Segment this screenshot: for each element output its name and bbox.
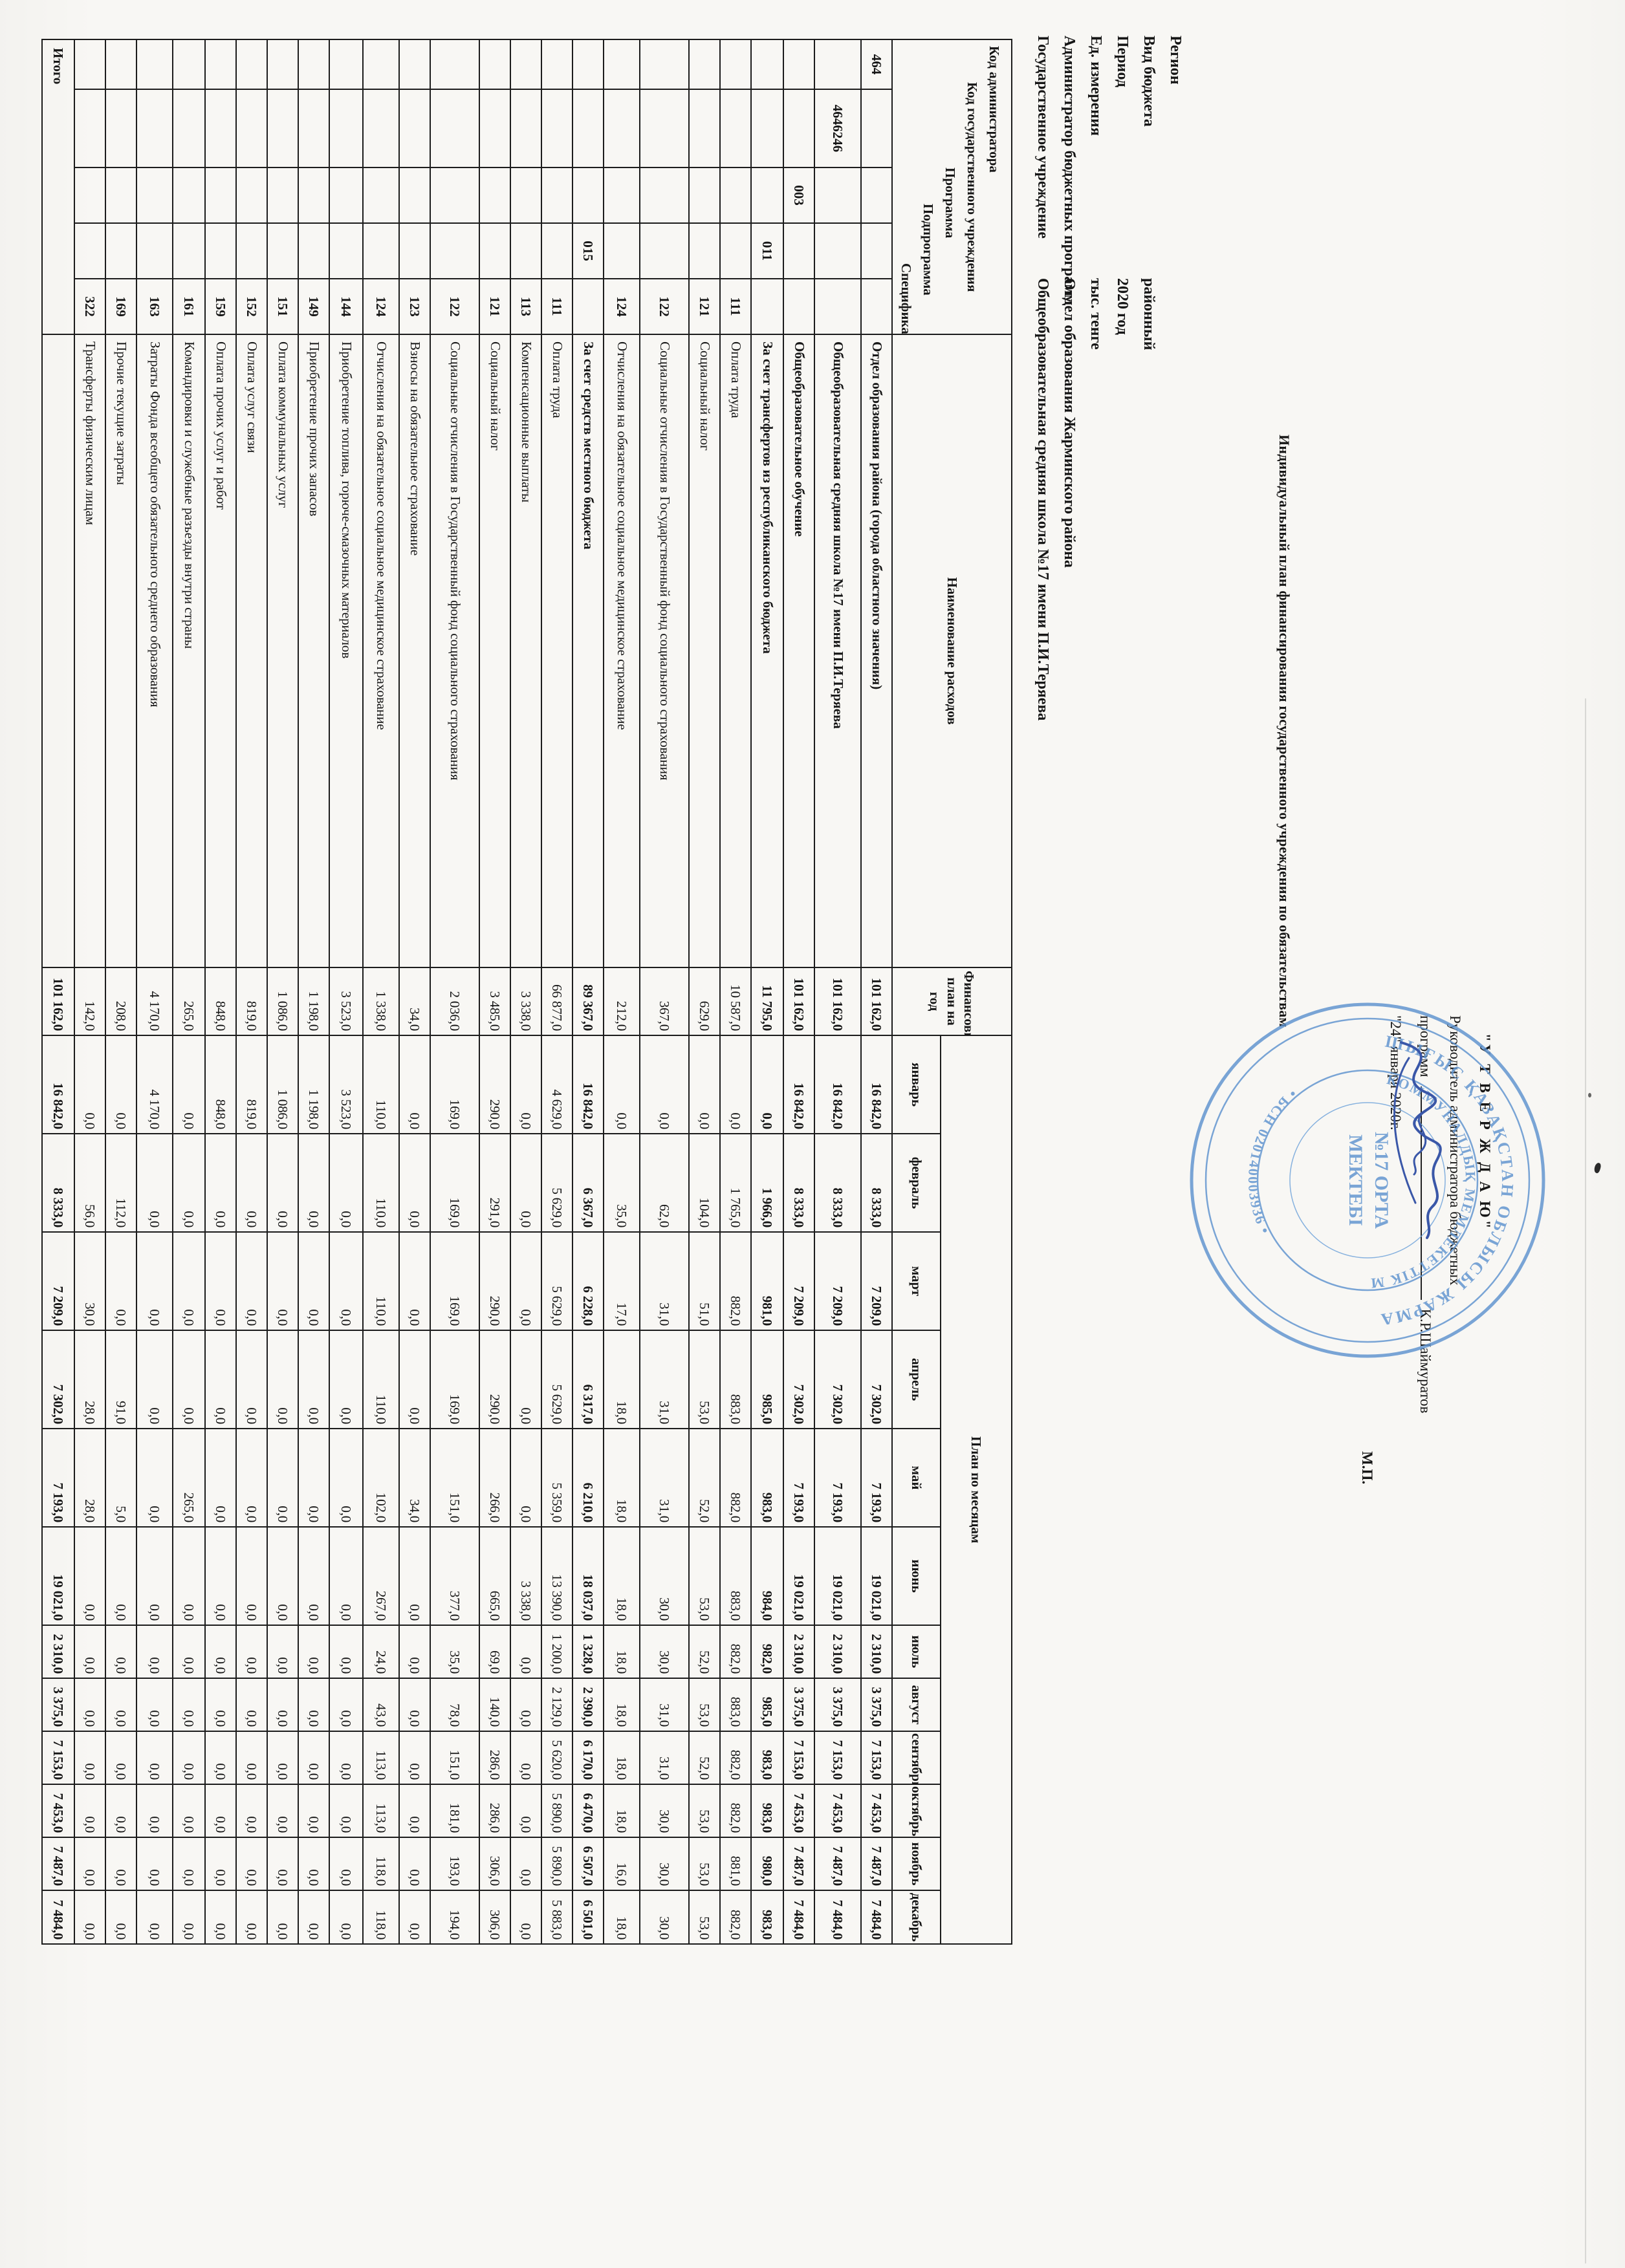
- code-cell: [399, 39, 430, 89]
- amount-cell: 194,0: [430, 1890, 479, 1944]
- code-cell: [640, 89, 689, 167]
- amount-cell: 981,0: [751, 1232, 783, 1330]
- amount-cell: 266,0: [479, 1429, 510, 1527]
- amount-cell: 0,0: [74, 1625, 105, 1678]
- amount-cell: 984,0: [751, 1527, 783, 1625]
- code-cell: [74, 223, 105, 279]
- code-cell: [430, 167, 479, 223]
- code-cell: 123: [399, 279, 430, 334]
- amount-cell: 18,0: [604, 1625, 640, 1678]
- amount-cell: 0,0: [329, 1429, 363, 1527]
- amount-cell: 985,0: [751, 1330, 783, 1429]
- month-header-февраль: февраль: [892, 1134, 941, 1232]
- code-cell: [173, 89, 205, 167]
- amount-cell: 0,0: [267, 1731, 298, 1784]
- code-cell: [814, 223, 861, 279]
- code-cell: [74, 89, 105, 167]
- amount-cell: 0,0: [399, 1232, 430, 1330]
- code-cell: 015: [573, 223, 604, 279]
- code-columns-header: Код администратораКод государственного у…: [892, 39, 1012, 334]
- code-cell: [783, 89, 814, 167]
- code-cell: [783, 279, 814, 334]
- meta-value: тыс. тенге: [1087, 278, 1104, 350]
- code-cell: 4646246: [814, 89, 861, 167]
- amount-cell: 5,0: [105, 1429, 136, 1527]
- amount-cell: 1 966,0: [751, 1134, 783, 1232]
- amount-cell: 5 629,0: [541, 1134, 573, 1232]
- month-header-апрель: апрель: [892, 1330, 941, 1429]
- amount-cell: 3 375,0: [783, 1678, 814, 1731]
- amount-cell: 101 162,0: [42, 967, 74, 1035]
- code-cell: [399, 167, 430, 223]
- amount-cell: 2 129,0: [541, 1678, 573, 1731]
- amount-cell: 6 367,0: [573, 1134, 604, 1232]
- amount-cell: 69,0: [479, 1625, 510, 1678]
- code-cell: [173, 223, 205, 279]
- amount-cell: 13 390,0: [541, 1527, 573, 1625]
- amount-cell: 0,0: [267, 1678, 298, 1731]
- amount-cell: 34,0: [399, 1429, 430, 1527]
- document-title: Индивидуальный план финансирования госуд…: [1276, 435, 1292, 1017]
- amount-cell: 0,0: [399, 1625, 430, 1678]
- amount-cell: 17,0: [604, 1232, 640, 1330]
- amount-cell: 169,0: [430, 1232, 479, 1330]
- amount-cell: 0,0: [604, 1035, 640, 1134]
- amount-cell: 89 367,0: [573, 967, 604, 1035]
- amount-cell: 7 153,0: [42, 1731, 74, 1784]
- code-cell: [363, 39, 399, 89]
- expense-name-cell: Оплата коммунальных услуг: [267, 334, 298, 967]
- amount-cell: 0,0: [74, 1784, 105, 1837]
- expense-name-cell: Социальный налог: [479, 334, 510, 967]
- code-cell: [267, 89, 298, 167]
- code-cell: [74, 39, 105, 89]
- code-header-label: Подпрограмма: [917, 41, 939, 333]
- amount-cell: 3 338,0: [510, 1527, 541, 1625]
- code-cell: [479, 223, 510, 279]
- amount-cell: 629,0: [689, 967, 720, 1035]
- amount-cell: 18,0: [604, 1678, 640, 1731]
- amount-cell: 0,0: [298, 1625, 329, 1678]
- code-cell: [399, 89, 430, 167]
- amount-cell: 0,0: [205, 1429, 236, 1527]
- amount-cell: 11 795,0: [751, 967, 783, 1035]
- amount-cell: 0,0: [399, 1731, 430, 1784]
- amount-cell: 16 842,0: [783, 1035, 814, 1134]
- amount-cell: 0,0: [173, 1232, 205, 1330]
- amount-cell: 3 375,0: [42, 1678, 74, 1731]
- code-cell: [640, 167, 689, 223]
- code-cell: [510, 89, 541, 167]
- code-cell: [173, 167, 205, 223]
- amount-cell: 6 210,0: [573, 1429, 604, 1527]
- amount-cell: 0,0: [510, 1134, 541, 1232]
- amount-cell: 5 620,0: [541, 1731, 573, 1784]
- amount-cell: 53,0: [689, 1890, 720, 1944]
- scanner-streak: [1585, 698, 1586, 2263]
- amount-cell: 0,0: [236, 1784, 267, 1837]
- plan-year-column-header: Финансовый план на год: [892, 967, 1012, 1035]
- amount-cell: 7 484,0: [783, 1890, 814, 1944]
- amount-cell: 0,0: [267, 1429, 298, 1527]
- code-cell: [267, 223, 298, 279]
- amount-cell: 16 842,0: [814, 1035, 861, 1134]
- code-cell: [298, 89, 329, 167]
- amount-cell: 0,0: [105, 1035, 136, 1134]
- expense-name-cell: Оплата труда: [720, 334, 751, 967]
- amount-cell: 7 487,0: [861, 1837, 892, 1890]
- code-cell: [604, 223, 640, 279]
- code-cell: [861, 89, 892, 167]
- expense-name-cell: Затраты Фонда всеобщего обязательного ср…: [136, 334, 173, 967]
- amount-cell: 66 877,0: [541, 967, 573, 1035]
- code-cell: [136, 89, 173, 167]
- amount-cell: 3 375,0: [814, 1678, 861, 1731]
- amount-cell: 53,0: [689, 1837, 720, 1890]
- expense-name-cell: Оплата прочих услуг и работ: [205, 334, 236, 967]
- code-cell: [105, 89, 136, 167]
- amount-cell: 883,0: [720, 1527, 751, 1625]
- code-cell: 111: [541, 279, 573, 334]
- amount-cell: 110,0: [363, 1035, 399, 1134]
- code-cell: [751, 167, 783, 223]
- code-cell: [861, 167, 892, 223]
- amount-cell: 291,0: [479, 1134, 510, 1232]
- amount-cell: 0,0: [399, 1134, 430, 1232]
- amount-cell: 0,0: [298, 1731, 329, 1784]
- code-cell: [541, 39, 573, 89]
- code-cell: [363, 223, 399, 279]
- amount-cell: 983,0: [751, 1784, 783, 1837]
- amount-cell: 5 629,0: [541, 1232, 573, 1330]
- code-cell: [298, 39, 329, 89]
- amount-cell: 7 453,0: [814, 1784, 861, 1837]
- meta-value: Общеобразовательная средняя школа №17 им…: [1034, 278, 1051, 720]
- code-cell: [105, 167, 136, 223]
- code-cell: 149: [298, 279, 329, 334]
- amount-cell: 5 890,0: [541, 1837, 573, 1890]
- amount-cell: 882,0: [720, 1784, 751, 1837]
- month-header-ноябрь: ноябрь: [892, 1837, 941, 1890]
- code-cell: [136, 39, 173, 89]
- amount-cell: 0,0: [136, 1837, 173, 1890]
- amount-cell: 0,0: [236, 1527, 267, 1625]
- amount-cell: 53,0: [689, 1527, 720, 1625]
- amount-cell: 52,0: [689, 1625, 720, 1678]
- code-cell: 121: [479, 279, 510, 334]
- amount-cell: 24,0: [363, 1625, 399, 1678]
- amount-cell: 19 021,0: [814, 1527, 861, 1625]
- meta-row: Регион: [1157, 36, 1184, 876]
- code-cell: [573, 89, 604, 167]
- amount-cell: 1 338,0: [363, 967, 399, 1035]
- amount-cell: 0,0: [74, 1527, 105, 1625]
- amount-cell: 7 153,0: [814, 1731, 861, 1784]
- amount-cell: 290,0: [479, 1330, 510, 1429]
- code-cell: [479, 89, 510, 167]
- amount-cell: 18,0: [604, 1890, 640, 1944]
- code-cell: [720, 167, 751, 223]
- amount-cell: 0,0: [136, 1330, 173, 1429]
- code-cell: [720, 89, 751, 167]
- meta-label: Государственное учреждение: [1034, 36, 1051, 239]
- code-cell: [205, 223, 236, 279]
- amount-cell: 819,0: [236, 967, 267, 1035]
- amount-cell: 53,0: [689, 1784, 720, 1837]
- amount-cell: 7 453,0: [42, 1784, 74, 1837]
- code-cell: 161: [173, 279, 205, 334]
- name-cell: [42, 334, 74, 967]
- amount-cell: 0,0: [298, 1678, 329, 1731]
- amount-cell: 18,0: [604, 1731, 640, 1784]
- expense-name-cell: Отдел образования района (города областн…: [861, 334, 892, 967]
- amount-cell: 0,0: [105, 1678, 136, 1731]
- amount-cell: 7 487,0: [783, 1837, 814, 1890]
- amount-cell: 6 507,0: [573, 1837, 604, 1890]
- code-cell: [430, 223, 479, 279]
- amount-cell: 0,0: [298, 1232, 329, 1330]
- amount-cell: 91,0: [105, 1330, 136, 1429]
- ink-speck: [1593, 1162, 1602, 1174]
- amount-cell: 35,0: [430, 1625, 479, 1678]
- amount-cell: 169,0: [430, 1035, 479, 1134]
- amount-cell: 0,0: [510, 1232, 541, 1330]
- amount-cell: 7 302,0: [783, 1330, 814, 1429]
- amount-cell: 0,0: [510, 1678, 541, 1731]
- amount-cell: 78,0: [430, 1678, 479, 1731]
- amount-cell: 2 310,0: [814, 1625, 861, 1678]
- code-cell: [720, 223, 751, 279]
- code-cell: [479, 39, 510, 89]
- amount-cell: 6 170,0: [573, 1731, 604, 1784]
- seal-place-label: М.П.: [1358, 1451, 1375, 1484]
- amount-cell: 267,0: [363, 1527, 399, 1625]
- amount-cell: 28,0: [74, 1429, 105, 1527]
- expense-name-cell: Социальные отчисления в Государственный …: [430, 334, 479, 967]
- amount-cell: 110,0: [363, 1330, 399, 1429]
- amount-cell: 52,0: [689, 1429, 720, 1527]
- amount-cell: 983,0: [751, 1890, 783, 1944]
- amount-cell: 0,0: [173, 1527, 205, 1625]
- expense-name-cell: Отчисления на обязательное социальное ме…: [363, 334, 399, 967]
- amount-cell: 30,0: [640, 1890, 689, 1944]
- amount-cell: 0,0: [205, 1784, 236, 1837]
- amount-cell: 101 162,0: [783, 967, 814, 1035]
- code-cell: 003: [783, 167, 814, 223]
- amount-cell: 0,0: [105, 1527, 136, 1625]
- amount-cell: 7 209,0: [783, 1232, 814, 1330]
- code-cell: [541, 89, 573, 167]
- meta-row: Государственное учреждение Общеобразоват…: [1025, 36, 1051, 876]
- amount-cell: 0,0: [510, 1330, 541, 1429]
- amount-cell: 3 523,0: [329, 967, 363, 1035]
- amount-cell: 1 198,0: [298, 1035, 329, 1134]
- amount-cell: 0,0: [105, 1625, 136, 1678]
- amount-cell: 0,0: [298, 1330, 329, 1429]
- amount-cell: 2 036,0: [430, 967, 479, 1035]
- amount-cell: 0,0: [173, 1678, 205, 1731]
- amount-cell: 0,0: [236, 1134, 267, 1232]
- amount-cell: 377,0: [430, 1527, 479, 1625]
- amount-cell: 31,0: [640, 1429, 689, 1527]
- amount-cell: 43,0: [363, 1678, 399, 1731]
- amount-cell: 0,0: [510, 1890, 541, 1944]
- expense-name-cell: Отчисления на обязательное социальное ме…: [604, 334, 640, 967]
- amount-cell: 7 484,0: [861, 1890, 892, 1944]
- amount-cell: 169,0: [430, 1134, 479, 1232]
- code-cell: 151: [267, 279, 298, 334]
- code-cell: [173, 39, 205, 89]
- amount-cell: 983,0: [751, 1429, 783, 1527]
- month-header-июль: июль: [892, 1625, 941, 1678]
- amount-cell: 882,0: [720, 1429, 751, 1527]
- amount-cell: 0,0: [136, 1784, 173, 1837]
- code-cell: [329, 89, 363, 167]
- amount-cell: 7 193,0: [814, 1429, 861, 1527]
- code-cell: 322: [74, 279, 105, 334]
- amount-cell: 193,0: [430, 1837, 479, 1890]
- amount-cell: 31,0: [640, 1731, 689, 1784]
- amount-cell: 367,0: [640, 967, 689, 1035]
- amount-cell: 0,0: [510, 1035, 541, 1134]
- amount-cell: 881,0: [720, 1837, 751, 1890]
- amount-cell: 0,0: [105, 1890, 136, 1944]
- expense-name-cell: Взносы на обязательное страхование: [399, 334, 430, 967]
- month-header-июнь: июнь: [892, 1527, 941, 1625]
- code-cell: [298, 223, 329, 279]
- amount-cell: 0,0: [74, 1731, 105, 1784]
- code-cell: [751, 39, 783, 89]
- code-cell: [267, 167, 298, 223]
- amount-cell: 286,0: [479, 1731, 510, 1784]
- amount-cell: 3 523,0: [329, 1035, 363, 1134]
- meta-row: Ед. измерения тыс. тенге: [1078, 36, 1104, 876]
- document-sheet: Регион Вид бюджета районный Период 2020 …: [0, 0, 1625, 2268]
- amount-cell: 882,0: [720, 1625, 751, 1678]
- code-cell: [751, 89, 783, 167]
- code-cell: [479, 167, 510, 223]
- code-cell: 122: [430, 279, 479, 334]
- code-cell: [399, 223, 430, 279]
- amount-cell: 7 302,0: [861, 1330, 892, 1429]
- month-header-декабрь: декабрь: [892, 1890, 941, 1944]
- amount-cell: 0,0: [689, 1035, 720, 1134]
- amount-cell: 0,0: [74, 1890, 105, 1944]
- code-cell: [74, 167, 105, 223]
- amount-cell: 1 328,0: [573, 1625, 604, 1678]
- amount-cell: 883,0: [720, 1330, 751, 1429]
- amount-cell: 35,0: [604, 1134, 640, 1232]
- amount-cell: 0,0: [136, 1527, 173, 1625]
- month-header-сентябрь: сентябрь: [892, 1731, 941, 1784]
- amount-cell: 208,0: [105, 967, 136, 1035]
- expense-name-cell: Компенсационные выплаты: [510, 334, 541, 967]
- meta-block: Регион Вид бюджета районный Период 2020 …: [1025, 36, 1184, 876]
- amount-cell: 0,0: [173, 1837, 205, 1890]
- code-cell: 152: [236, 279, 267, 334]
- month-header-октябрь: октябрь: [892, 1784, 941, 1837]
- amount-cell: 0,0: [236, 1429, 267, 1527]
- code-cell: [510, 39, 541, 89]
- amount-cell: 985,0: [751, 1678, 783, 1731]
- amount-cell: 0,0: [173, 1625, 205, 1678]
- amount-cell: 882,0: [720, 1731, 751, 1784]
- amount-cell: 18,0: [604, 1429, 640, 1527]
- amount-cell: 0,0: [236, 1731, 267, 1784]
- code-cell: [783, 39, 814, 89]
- amount-cell: 0,0: [105, 1731, 136, 1784]
- code-header-label: Специфика: [895, 41, 917, 333]
- amount-cell: 7 302,0: [814, 1330, 861, 1429]
- amount-cell: 0,0: [136, 1678, 173, 1731]
- meta-row: Период 2020 год: [1104, 36, 1131, 876]
- amount-cell: 0,0: [267, 1232, 298, 1330]
- code-cell: [105, 39, 136, 89]
- amount-cell: 6 228,0: [573, 1232, 604, 1330]
- expense-name-cell: Социальный налог: [689, 334, 720, 967]
- code-cell: [814, 279, 861, 334]
- amount-cell: 7 487,0: [814, 1837, 861, 1890]
- amount-cell: 0,0: [205, 1527, 236, 1625]
- amount-cell: 982,0: [751, 1625, 783, 1678]
- amount-cell: 8 333,0: [783, 1134, 814, 1232]
- amount-cell: 7 153,0: [783, 1731, 814, 1784]
- amount-cell: 10 587,0: [720, 967, 751, 1035]
- amount-cell: 0,0: [205, 1890, 236, 1944]
- amount-cell: 0,0: [267, 1890, 298, 1944]
- amount-cell: 51,0: [689, 1232, 720, 1330]
- code-cell: [861, 279, 892, 334]
- code-cell: [136, 223, 173, 279]
- amount-cell: 0,0: [751, 1035, 783, 1134]
- amount-cell: 0,0: [399, 1527, 430, 1625]
- amount-cell: 0,0: [399, 1678, 430, 1731]
- code-cell: [541, 223, 573, 279]
- amount-cell: 0,0: [205, 1330, 236, 1429]
- amount-cell: 0,0: [136, 1731, 173, 1784]
- meta-value: Отдел образования Жарминского района: [1060, 278, 1078, 568]
- amount-cell: 7 302,0: [42, 1330, 74, 1429]
- amount-cell: 31,0: [640, 1330, 689, 1429]
- code-cell: [267, 39, 298, 89]
- amount-cell: 18 037,0: [573, 1527, 604, 1625]
- amount-cell: 0,0: [267, 1330, 298, 1429]
- amount-cell: 18,0: [604, 1330, 640, 1429]
- amount-cell: 110,0: [363, 1134, 399, 1232]
- amount-cell: 0,0: [236, 1890, 267, 1944]
- amount-cell: 0,0: [267, 1134, 298, 1232]
- code-header-label: Программа: [939, 41, 961, 333]
- amount-cell: 0,0: [329, 1784, 363, 1837]
- amount-cell: 0,0: [298, 1134, 329, 1232]
- amount-cell: 0,0: [74, 1678, 105, 1731]
- code-cell: [541, 167, 573, 223]
- amount-cell: 265,0: [173, 967, 205, 1035]
- amount-cell: 0,0: [298, 1890, 329, 1944]
- expense-name-cell: Приобретение прочих запасов: [298, 334, 329, 967]
- amount-cell: 56,0: [74, 1134, 105, 1232]
- amount-cell: 0,0: [173, 1330, 205, 1429]
- amount-cell: 7 153,0: [861, 1731, 892, 1784]
- amount-cell: 306,0: [479, 1837, 510, 1890]
- amount-cell: 1 765,0: [720, 1134, 751, 1232]
- amount-cell: 0,0: [105, 1232, 136, 1330]
- amount-cell: 0,0: [329, 1890, 363, 1944]
- amount-cell: 151,0: [430, 1731, 479, 1784]
- amount-cell: 6 501,0: [573, 1890, 604, 1944]
- amount-cell: 2 310,0: [861, 1625, 892, 1678]
- code-cell: [604, 167, 640, 223]
